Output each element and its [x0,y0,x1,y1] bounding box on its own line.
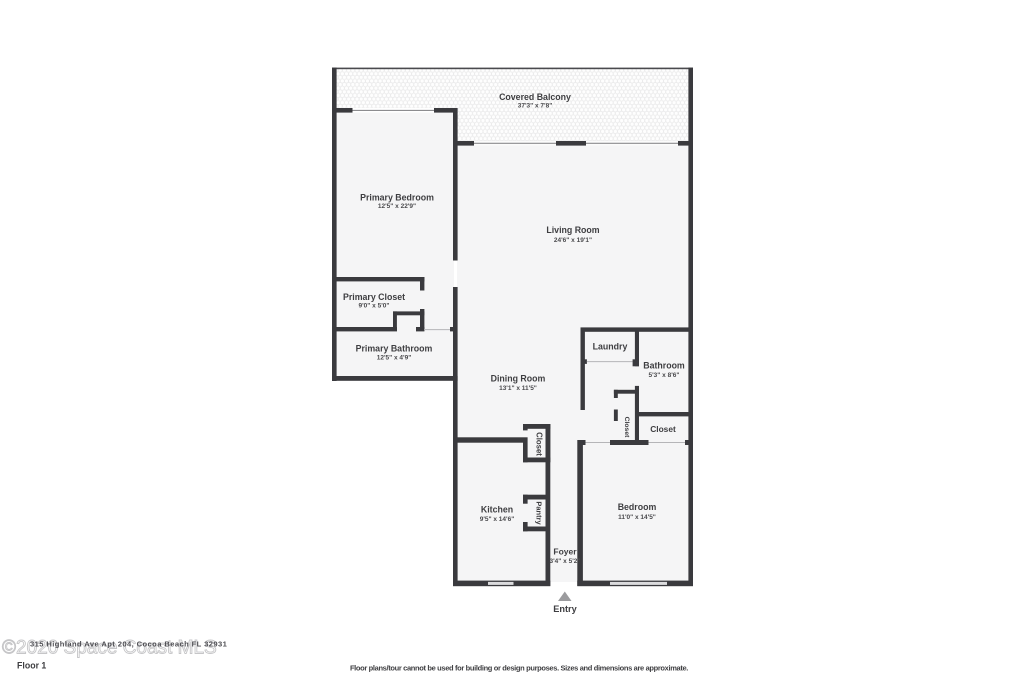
svg-text:Living Room: Living Room [546,225,599,235]
svg-text:Primary Closet: Primary Closet [343,292,405,302]
svg-text:13'1" x 11'5": 13'1" x 11'5" [499,385,537,392]
svg-text:12'5" x 4'9": 12'5" x 4'9" [377,355,412,362]
svg-text:Primary Bathroom: Primary Bathroom [356,344,433,354]
svg-text:Foyer: Foyer [553,547,577,557]
svg-text:24'6" x 19'1": 24'6" x 19'1" [554,237,592,244]
svg-text:Closet: Closet [623,417,630,439]
svg-text:9'0" x 5'0": 9'0" x 5'0" [359,303,390,310]
svg-text:315 Highland Ave Apt 204, Coco: 315 Highland Ave Apt 204, Cocoa Beach FL… [30,640,228,649]
svg-text:Kitchen: Kitchen [481,505,513,515]
svg-text:Closet: Closet [650,424,676,434]
svg-text:11'0" x 14'5": 11'0" x 14'5" [618,514,656,521]
svg-text:Floor 1: Floor 1 [17,661,46,671]
svg-text:5'3" x 8'6": 5'3" x 8'6" [649,372,680,379]
svg-text:Dining Room: Dining Room [491,374,546,384]
svg-text:Laundry: Laundry [593,342,628,352]
svg-text:Entry: Entry [553,604,577,614]
svg-text:Closet: Closet [535,432,544,456]
svg-text:Floor plans/tour cannot be use: Floor plans/tour cannot be used for buil… [350,664,688,673]
svg-text:37'3" x 7'8": 37'3" x 7'8" [518,103,553,110]
svg-text:9'5" x 14'6": 9'5" x 14'6" [480,516,515,523]
svg-text:12'5" x 22'9": 12'5" x 22'9" [378,203,416,210]
svg-text:Primary Bedroom: Primary Bedroom [360,192,434,202]
svg-text:Bathroom: Bathroom [643,361,685,371]
svg-text:3'4" x 5'2": 3'4" x 5'2" [550,558,581,565]
svg-text:Bedroom: Bedroom [618,502,657,512]
svg-text:Pantry: Pantry [535,501,544,525]
svg-text:Covered Balcony: Covered Balcony [499,92,571,102]
